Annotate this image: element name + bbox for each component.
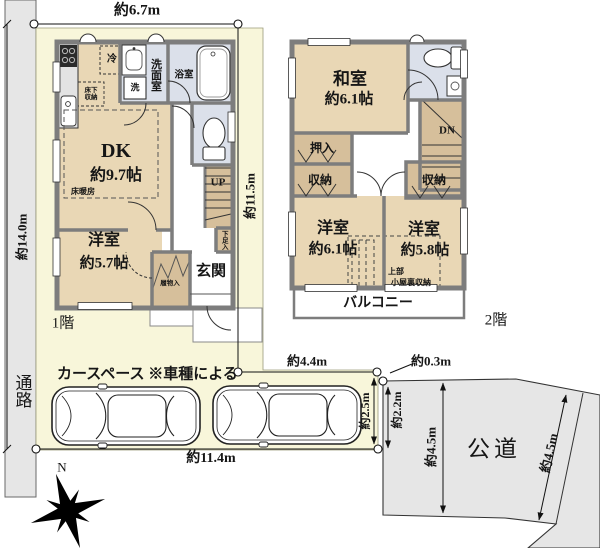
oshiire-label: 押入 [310,142,334,154]
balcony-label: バルコニー [343,297,413,311]
room-washitsu-label: 和室 [333,71,367,88]
dim-left-height: 約14.0m [16,214,29,261]
public-road-label: 公道 [467,438,521,461]
corner-sink-icon [447,76,463,96]
dim-car-space-depth: 約2.5m [359,393,371,430]
attic-label-line1: 上部 [388,268,404,276]
storage-right-label: 収納 [422,174,446,186]
room-dk-label: DK [101,141,131,161]
stairs-up-label: UP [211,178,226,189]
car-1 [52,384,200,448]
public-road-area [383,379,600,548]
storage-left-label: 収納 [308,174,332,186]
room-youshitsu2f-right-size: 約5.8帖 [401,244,450,259]
dim-floor1-right-height: 約11.5m [244,173,257,219]
room-washitsu-size: 約6.1帖 [325,93,374,108]
floor-heating-label: 床暖房 [71,188,95,196]
room-youshitsu2f-left-size: 約6.1帖 [309,243,358,258]
underfloor-storage-label: 床下収納 [83,87,99,101]
car-space-label: カースペース ※車種による [57,368,238,383]
floor2-tag: 2階 [485,314,508,329]
car-2 [213,383,361,447]
attic-label-line2: 小屋裏収納 [391,279,431,287]
footwear-storage-label: 履物入 [160,281,180,288]
stairs-down-label: DN [439,126,455,137]
kitchen-counter-icon [59,44,78,128]
shoe-box-label: 下足入 [220,230,227,250]
room-youshitsu1f-size: 約5.7帖 [80,257,129,272]
room-dk-size: 約9.7帖 [90,168,142,184]
bathtub-icon [197,46,230,100]
dim-road-width-vertical: 約4.5m [425,427,438,467]
room-bath-label: 浴室 [174,71,193,81]
floorplan-graphics [0,0,600,548]
room-youshitsu2f-left-label: 洋室 [317,221,349,237]
floor1-tag: 1階 [52,317,75,332]
north-label: N [57,461,66,474]
dim-bottom-width: 約11.4m [186,452,235,466]
toilet-icon-1f [203,118,225,160]
dim-extension-width: 約4.4m [287,355,327,368]
room-youshitsu1f-label: 洋室 [88,233,120,249]
room-youshitsu2f-right-label: 洋室 [408,222,440,238]
dim-top-width: 約6.7m [114,4,160,19]
room-fridge-label: 冷 [107,55,117,65]
passage-label: 通路 [14,374,31,408]
dim-corner-gap: 約0.3m [411,355,451,368]
washer-label: 洗 [130,84,139,93]
dim-road-edge: 約2.2m [391,392,403,429]
floorplan-canvas: 約6.7m 約14.0m 約11.5m 約11.4m 約4.4m 約0.3m 約… [0,0,600,548]
room-washroom-label: 洗面室 [150,59,161,92]
washroom-sink-icon [122,45,146,75]
floor1-plan [53,34,235,330]
room-genkan-label: 玄関 [196,265,226,280]
